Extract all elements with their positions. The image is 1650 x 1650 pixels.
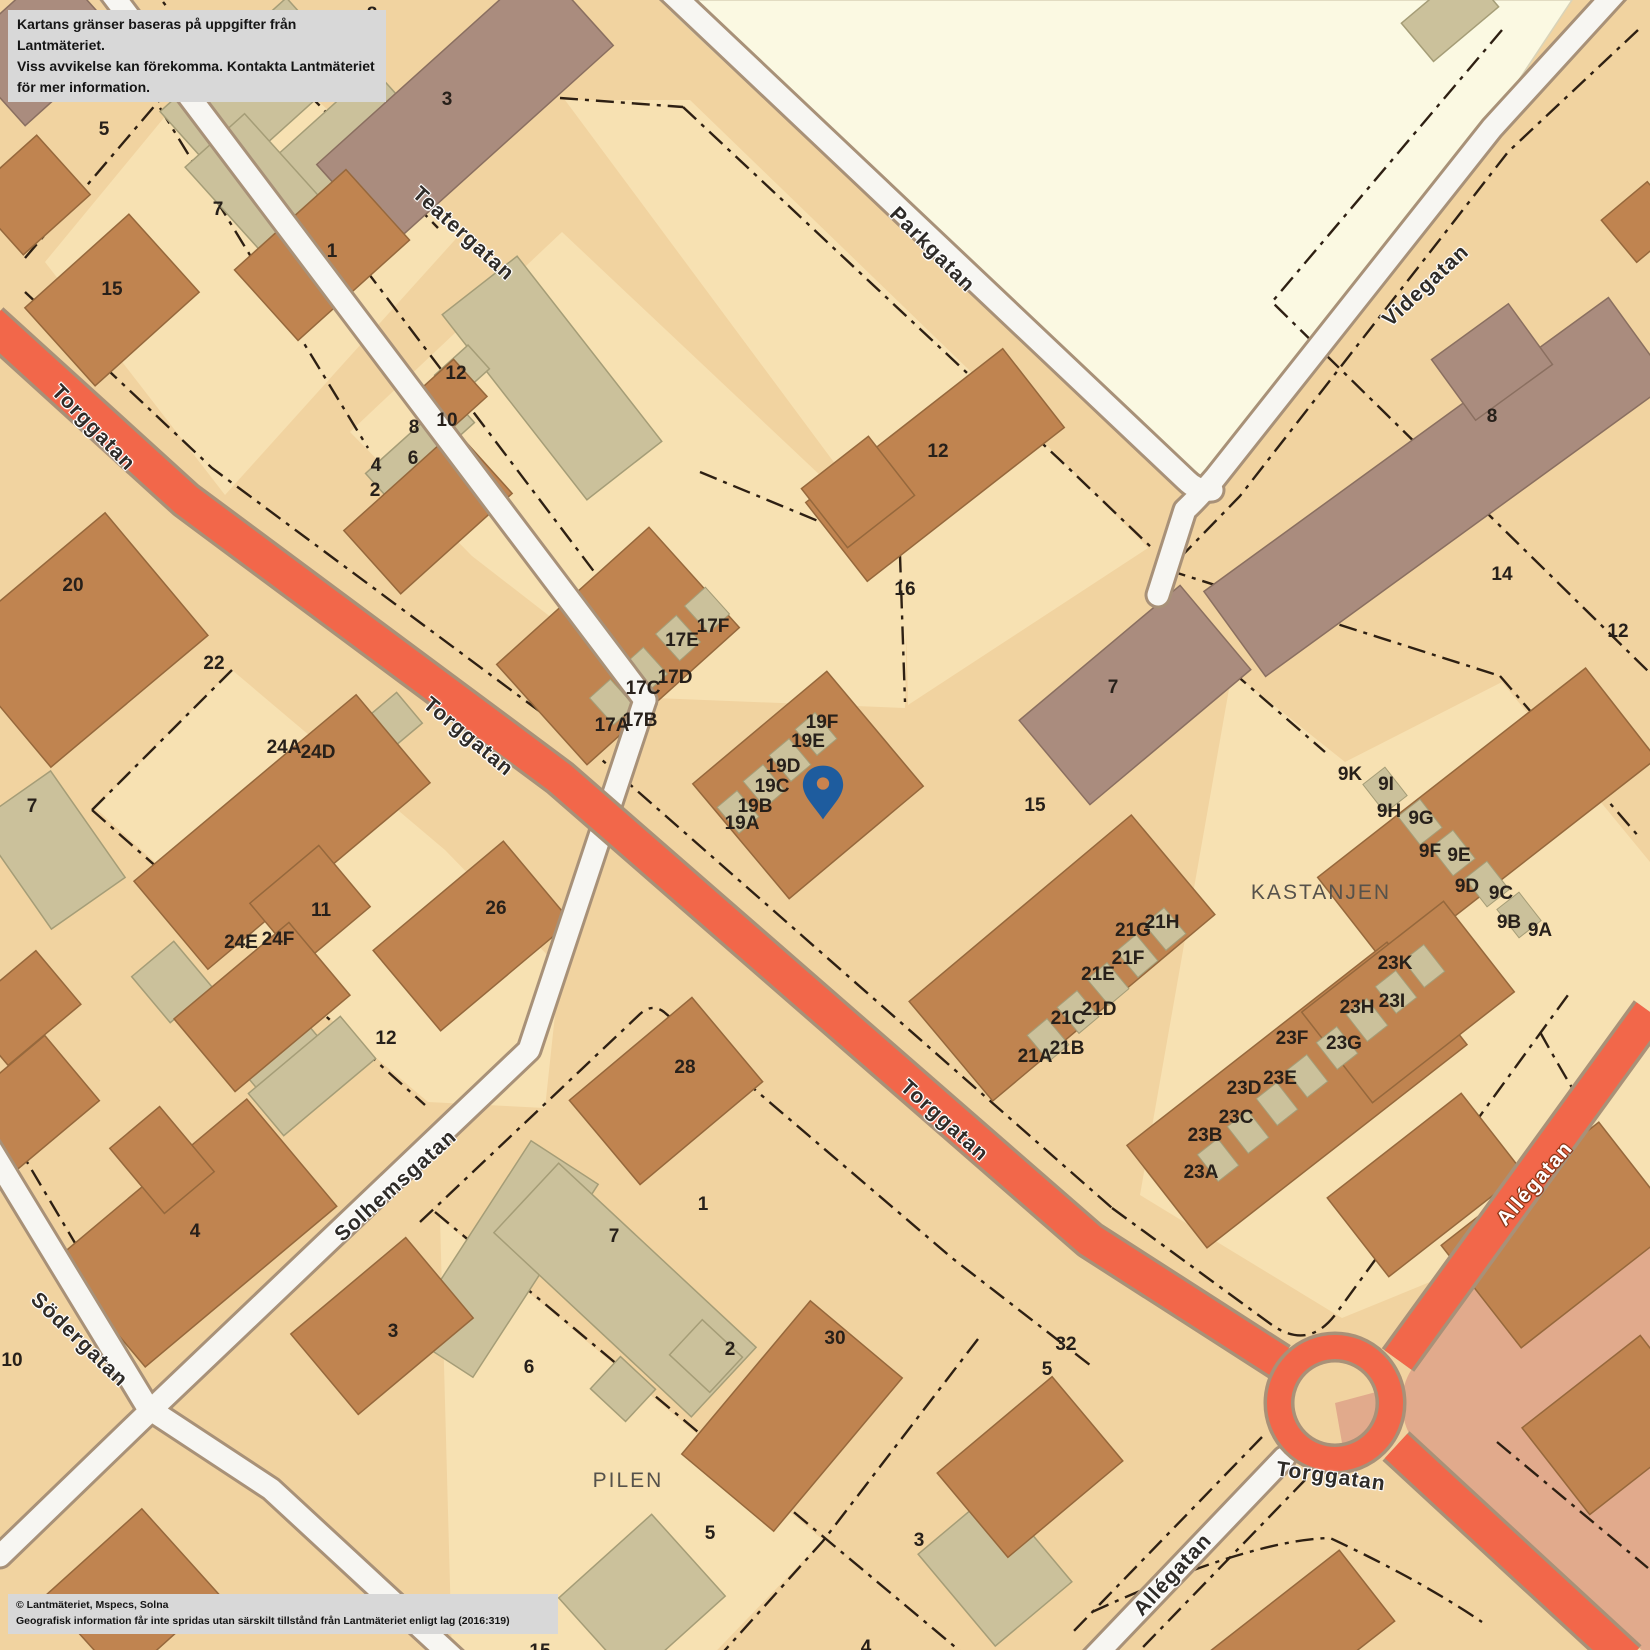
house-number-label: 7 [609, 1226, 620, 1248]
house-number-label: 8 [409, 417, 420, 439]
house-number-label: 24F [262, 929, 295, 951]
house-number-label: 9B [1497, 912, 1521, 934]
house-number-label: 21A [1018, 1046, 1053, 1068]
house-number-label: 21H [1145, 912, 1180, 934]
house-number-label: 21B [1050, 1038, 1085, 1060]
house-number-label: 19D [766, 756, 801, 778]
house-number-label: 17B [623, 710, 658, 732]
house-number-label: 20 [62, 575, 83, 597]
house-number-label: 21F [1112, 948, 1145, 970]
house-number-label: 3 [914, 1530, 925, 1552]
house-number-label: 9A [1528, 920, 1552, 942]
house-number-label: 23B [1188, 1125, 1223, 1147]
house-number-label: 6 [408, 448, 419, 470]
house-number-label: 17C [626, 678, 661, 700]
house-number-label: 5 [705, 1523, 716, 1545]
map-stage[interactable]: 85731151210864217A17B17C17D17E17F19A19B1… [0, 0, 1650, 1650]
house-number-label: 23A [1184, 1162, 1219, 1184]
house-number-label: 21C [1051, 1008, 1086, 1030]
house-number-label: 9F [1419, 841, 1441, 863]
house-number-label: 8 [1487, 406, 1498, 428]
house-number-label: 15 [101, 279, 122, 301]
house-number-label: 9C [1489, 883, 1513, 905]
map-disclaimer: Kartans gränser baseras på uppgifter frå… [8, 10, 386, 102]
house-number-label: 12 [375, 1028, 396, 1050]
house-number-label: 19B [738, 796, 773, 818]
area-name-label: PILEN [593, 1469, 664, 1493]
house-number-label: 7 [1108, 677, 1119, 699]
house-number-label: 4 [190, 1221, 201, 1243]
house-number-label: 28 [674, 1057, 695, 1079]
disclaimer-line1: Kartans gränser baseras på uppgifter frå… [17, 14, 377, 56]
house-number-label: 2 [370, 480, 381, 502]
house-number-label: 7 [213, 199, 224, 221]
house-number-label: 17E [665, 630, 699, 652]
house-number-label: 1 [327, 241, 338, 263]
house-number-label: 21D [1082, 999, 1117, 1021]
house-number-label: 3 [388, 1321, 399, 1343]
house-number-label: 23E [1263, 1068, 1297, 1090]
house-number-label: 23H [1340, 997, 1375, 1019]
house-number-label: 9E [1447, 845, 1470, 867]
area-name-label: KASTANJEN [1251, 881, 1391, 905]
house-number-label: 17F [697, 616, 730, 638]
house-number-label: 3 [442, 89, 453, 111]
house-number-label: 9K [1338, 764, 1362, 786]
house-number-label: 23D [1227, 1078, 1262, 1100]
house-number-label: 4 [861, 1637, 872, 1650]
house-number-label: 6 [524, 1357, 535, 1379]
attribution-line2: Geografisk information får inte spridas … [16, 1614, 550, 1630]
roundabout [1279, 1347, 1391, 1459]
house-number-label: 2 [725, 1339, 736, 1361]
house-number-label: 5 [1042, 1359, 1053, 1381]
house-number-label: 15 [1024, 795, 1045, 817]
house-number-label: 19E [791, 731, 825, 753]
house-number-label: 12 [927, 441, 948, 463]
house-number-label: 14 [1491, 564, 1512, 586]
house-number-label: 11 [311, 900, 331, 922]
house-number-label: 24A [267, 737, 302, 759]
house-number-label: 23I [1379, 991, 1405, 1013]
attribution-line1: © Lantmäteriet, Mspecs, Solna [16, 1598, 550, 1614]
house-number-label: 32 [1055, 1334, 1076, 1356]
house-number-label: 23G [1326, 1033, 1362, 1055]
house-number-label: 12 [445, 363, 466, 385]
house-number-label: 21E [1081, 964, 1115, 986]
house-number-label: 19C [755, 776, 790, 798]
house-number-label: 12 [1607, 621, 1628, 643]
house-number-label: 9H [1377, 801, 1401, 823]
house-number-label: 23C [1219, 1107, 1254, 1129]
house-number-label: 17D [658, 667, 693, 689]
house-number-label: 7 [27, 796, 38, 818]
house-number-label: 15 [529, 1641, 550, 1650]
map-canvas [0, 0, 1650, 1650]
house-number-label: 10 [1, 1350, 22, 1372]
house-number-label: 26 [485, 898, 506, 920]
house-number-label: 23K [1378, 953, 1413, 975]
disclaimer-line2: Viss avvikelse kan förekomma. Kontakta L… [17, 56, 377, 98]
house-number-label: 9G [1408, 808, 1433, 830]
house-number-label: 10 [436, 410, 457, 432]
house-number-label: 24E [224, 932, 258, 954]
map-attribution: © Lantmäteriet, Mspecs, Solna Geografisk… [8, 1594, 558, 1634]
house-number-label: 23F [1276, 1028, 1309, 1050]
house-number-label: 16 [894, 579, 915, 601]
house-number-label: 24D [301, 742, 336, 764]
house-number-label: 4 [371, 455, 382, 477]
house-number-label: 5 [99, 119, 110, 141]
house-number-label: 19F [806, 712, 839, 734]
house-number-label: 22 [203, 653, 224, 675]
house-number-label: 9D [1455, 876, 1479, 898]
house-number-label: 9I [1378, 774, 1394, 796]
house-number-label: 30 [824, 1328, 845, 1350]
house-number-label: 1 [698, 1194, 709, 1216]
